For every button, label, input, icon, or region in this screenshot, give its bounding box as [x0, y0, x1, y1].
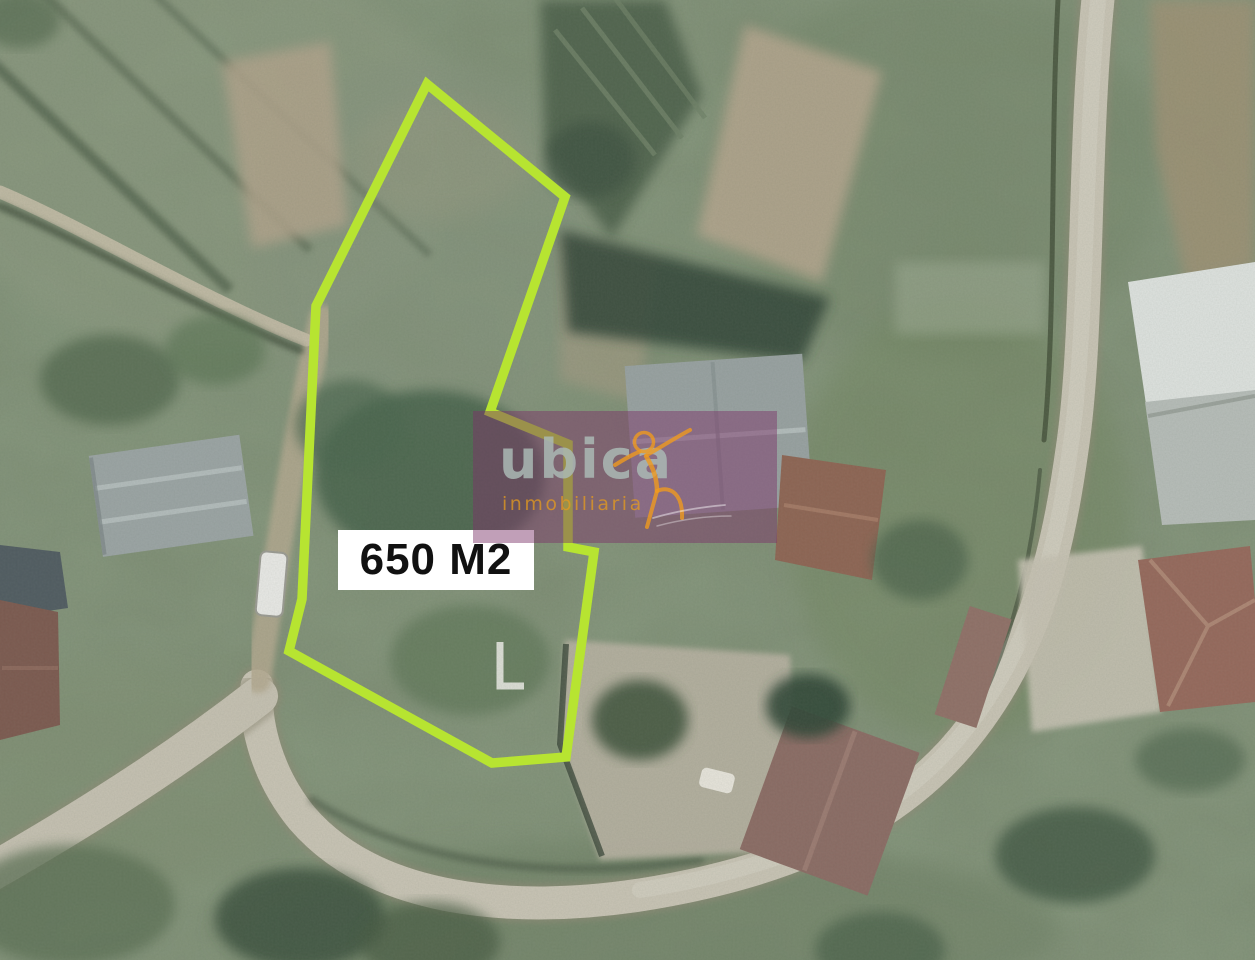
dancing-person-icon	[613, 417, 763, 541]
agency-watermark: ubica inmobiliaria	[473, 411, 777, 543]
satellite-listing-image: 650 M2 ubica inmobiliaria	[0, 0, 1255, 960]
